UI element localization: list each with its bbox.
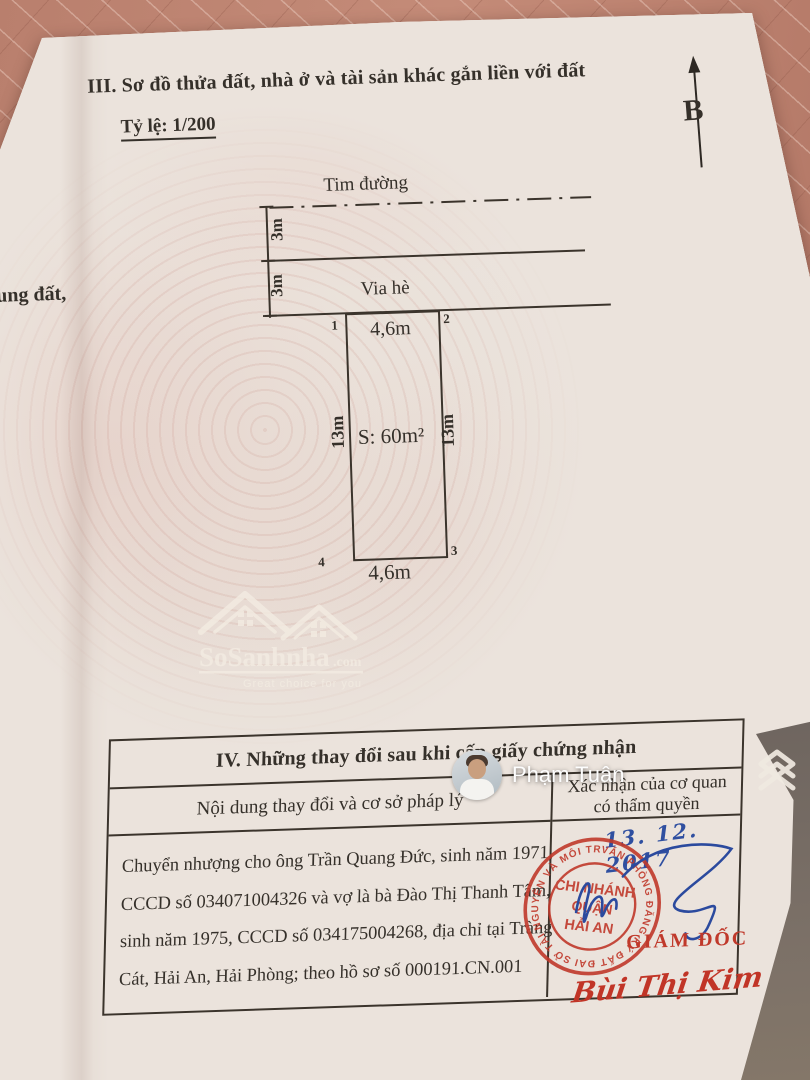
road-edge-line xyxy=(265,249,585,262)
avatar-shirt xyxy=(460,779,494,800)
sidewalk-label: Via hè xyxy=(340,277,431,302)
road-centerline-dashdot-line xyxy=(269,195,591,210)
plot-corner-4: 4 xyxy=(318,554,325,570)
transfer-note: Chuyển nhượng cho ông Trần Quang Đức, si… xyxy=(105,822,551,999)
watermark-brand-suffix: .com xyxy=(333,655,362,670)
watermark-tagline: Great choice for you xyxy=(243,678,362,690)
section-iii-title: III. Sơ đồ thửa đất, nhà ở và tài sản kh… xyxy=(87,59,586,99)
watermark-logo: SoSanhnha .com Great choice for you xyxy=(193,580,369,696)
scale-note: Tỷ lệ: 1/200 xyxy=(120,114,216,142)
plot-corner-3: 3 xyxy=(451,543,458,559)
road-width-dimension: 3m xyxy=(266,208,287,251)
page-content: III. Sơ đồ thửa đất, nhà ở và tài sản kh… xyxy=(0,0,810,1080)
signer-title: GIÁM ĐỐC xyxy=(622,927,752,954)
front-edge-dimension: 4,6m xyxy=(359,317,422,342)
plot-corner-2: 2 xyxy=(443,311,450,327)
caller-name: Phạm Tuân xyxy=(512,762,625,788)
watermark-roof-right-icon xyxy=(283,607,355,638)
photo-of-land-certificate: { "document": { "section_iii": { "title"… xyxy=(0,0,810,1080)
changes-content-column: Nội dung thay đổi và cơ sở pháp lý Chuyể… xyxy=(104,775,553,1012)
watermark-brand: SoSanhnha xyxy=(199,642,330,672)
certificate-page: III. Sơ đồ thửa đất, nhà ở và tài sản kh… xyxy=(0,0,810,1080)
north-arrow: B xyxy=(668,54,727,173)
changes-table: IV. Những thay đổi sau khi cấp giấy chứn… xyxy=(102,718,744,1015)
road-centerline-label: Tim đường xyxy=(304,172,427,198)
watermark-roof-left-icon xyxy=(201,594,289,632)
left-page-text-fragment: ung đất, xyxy=(0,283,67,308)
north-label: B xyxy=(682,93,705,128)
layers-chevron-icon xyxy=(753,748,801,802)
plot-area-label: S: 60m² xyxy=(341,422,442,450)
right-edge-dimension: 13m xyxy=(437,405,460,456)
sidewalk-width-dimension: 3m xyxy=(266,264,287,307)
plot-corner-1: 1 xyxy=(331,318,338,334)
left-edge-dimension: 13m xyxy=(327,407,350,458)
certificate-page-wrap: III. Sơ đồ thửa đất, nhà ở và tài sản kh… xyxy=(0,0,810,1080)
avatar-head xyxy=(468,759,486,779)
caller-overlay: Phạm Tuân xyxy=(452,750,625,800)
avatar xyxy=(452,750,502,800)
